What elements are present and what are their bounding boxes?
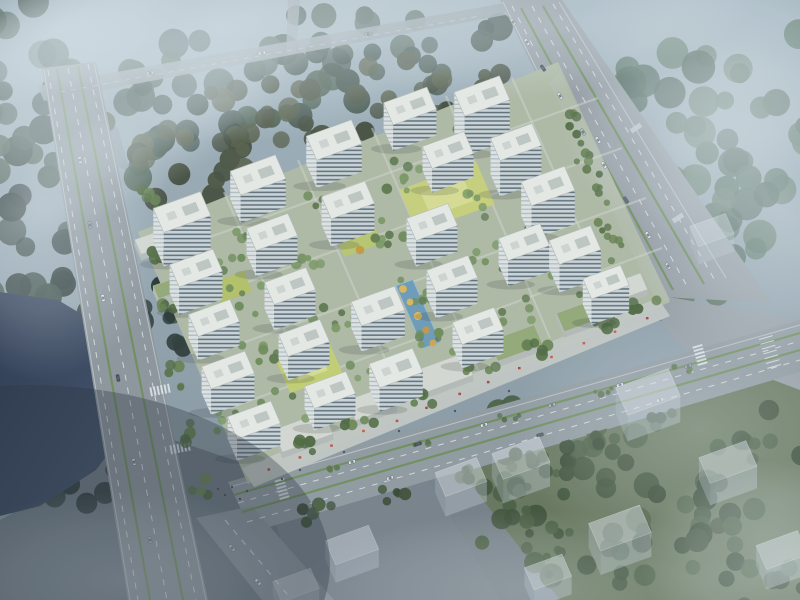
mist-overlay <box>0 0 800 600</box>
residential-complex-rendering <box>0 0 800 600</box>
cool-tint-overlay <box>0 0 800 600</box>
aerial-rendering-viewport <box>0 0 800 600</box>
